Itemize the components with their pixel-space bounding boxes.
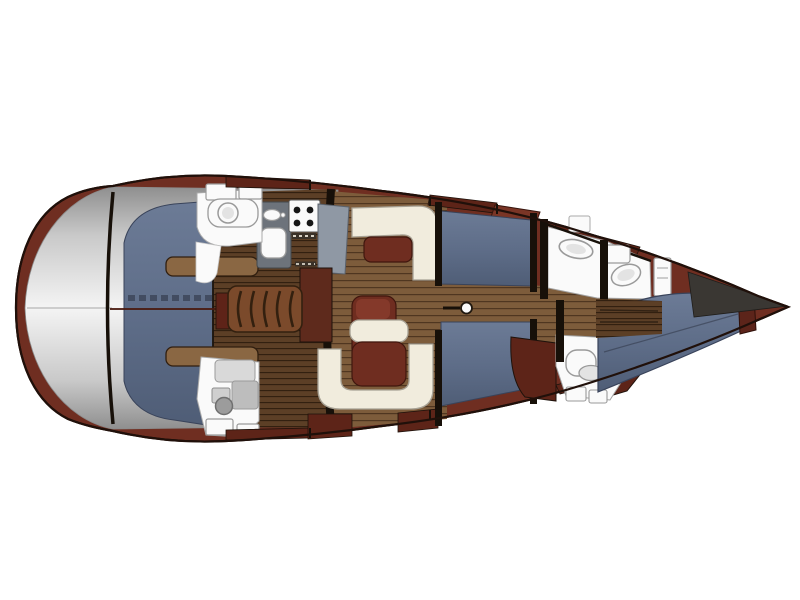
shower-knob [216, 398, 233, 415]
trim-step [308, 414, 352, 439]
stove-burner [294, 207, 301, 214]
bulkhead-post [530, 213, 537, 292]
shower-tray [232, 381, 258, 409]
dinette-table [352, 342, 406, 386]
shower-panel [215, 360, 255, 382]
stove-burner [307, 207, 314, 214]
floorplan-page [0, 0, 800, 600]
mast-post [461, 303, 472, 314]
galley-faucet [264, 210, 281, 221]
toilet-bowl [222, 207, 234, 219]
upper-midship-berth [441, 211, 531, 286]
fwd-door-column [654, 258, 671, 296]
galley [257, 200, 349, 274]
stove-burner [294, 220, 301, 227]
nav-chair-back [356, 299, 390, 319]
l-settee-table [364, 237, 412, 262]
galley-faucet-knob [281, 213, 285, 217]
stove-burner [307, 220, 314, 227]
aft-shower [197, 357, 259, 438]
bulkhead-post [540, 219, 548, 299]
yacht-floorplan [0, 0, 800, 600]
wardrobe [300, 268, 332, 342]
fwd-step-locker [596, 299, 662, 338]
nav-bench-cushion [350, 320, 408, 342]
bulkhead-post [435, 202, 442, 286]
galley-sink [261, 228, 286, 258]
bulkhead-post [556, 300, 564, 362]
galley-stove [289, 200, 320, 232]
fwd-step-line [600, 310, 658, 311]
bulkhead-post [600, 240, 608, 302]
galley-counter-slab [318, 204, 349, 274]
bulkhead-post [435, 330, 442, 426]
